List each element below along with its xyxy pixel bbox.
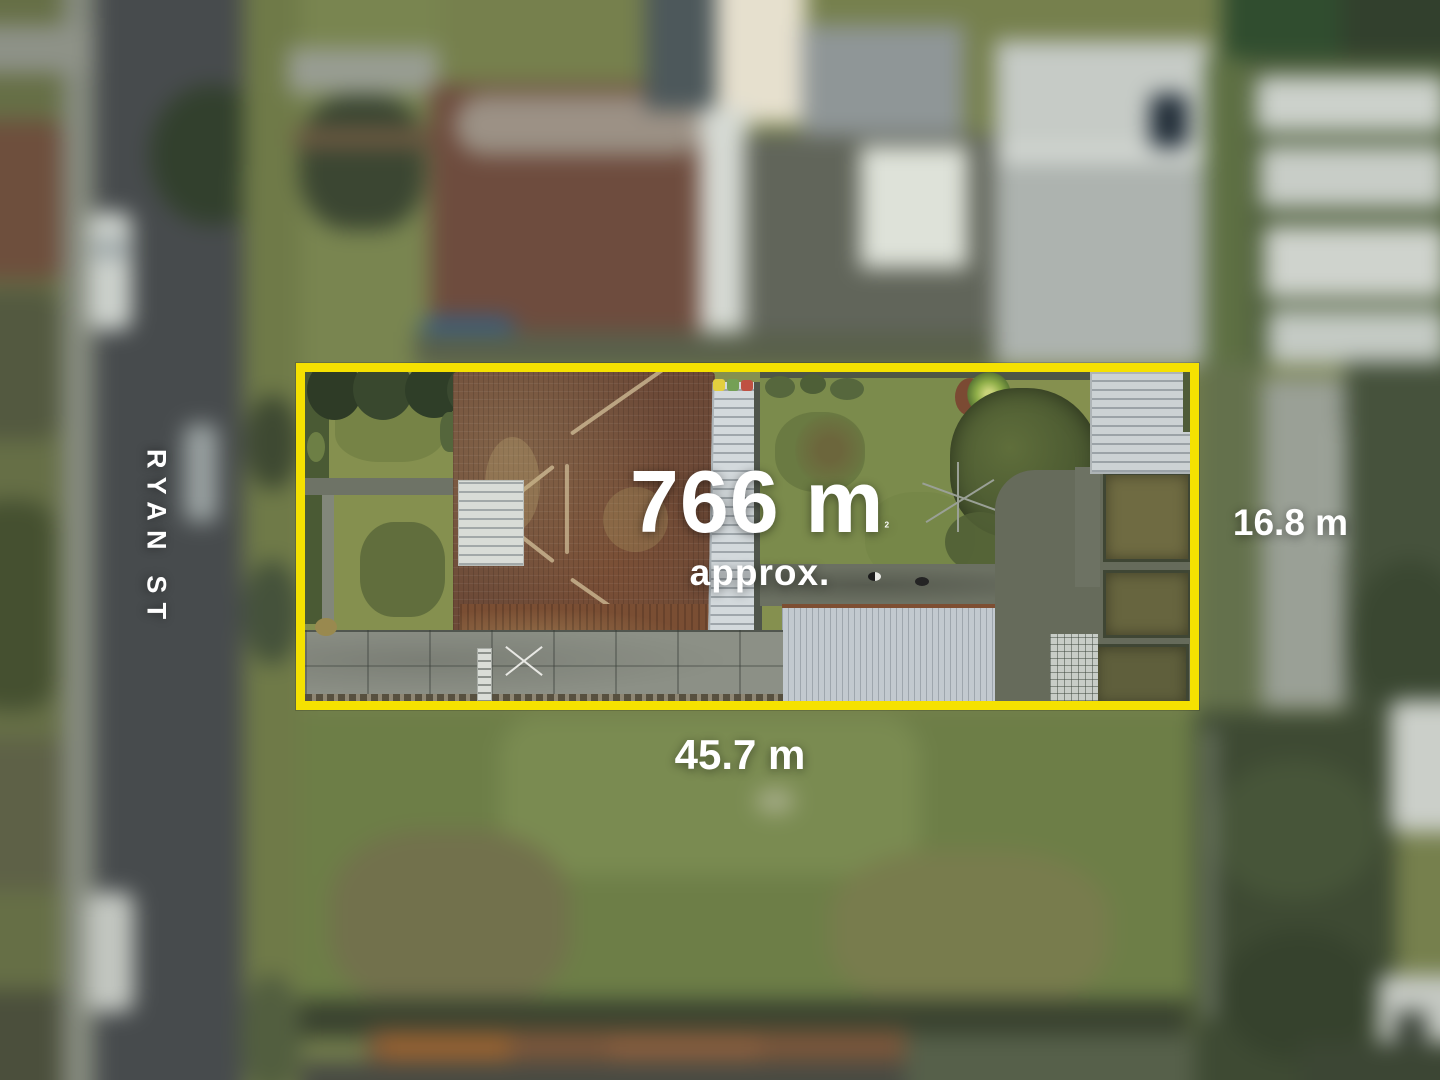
- trees-top: [300, 95, 425, 230]
- strip-tree: [243, 560, 301, 665]
- rear-lawn-brown: [330, 830, 570, 1010]
- wheelie-bin-green: [727, 379, 739, 391]
- white-gate: [477, 648, 492, 701]
- shrub: [800, 374, 826, 394]
- caravan: [1264, 226, 1440, 298]
- green-roof: [1222, 0, 1347, 65]
- side-dimension-label: 16.8 m: [1208, 502, 1373, 544]
- parked-car: [86, 892, 134, 1012]
- car-windshield: [92, 240, 128, 258]
- street-name-label: RYAN ST: [126, 436, 186, 641]
- frontage-dimension-label: 45.7 m: [640, 731, 840, 779]
- aerial-property-photo: RYAN ST 766 m2 approx. 45.7 m 16.8 m: [0, 0, 1440, 1080]
- caravan: [1260, 146, 1440, 208]
- dark-curved-roof: [645, 0, 720, 110]
- garden-bed: [1103, 570, 1190, 638]
- warehouse-seam: [998, 148, 1208, 162]
- parked-car: [88, 212, 132, 330]
- caravan: [1268, 310, 1440, 364]
- brick-edge: [305, 694, 783, 701]
- gray-roof: [802, 25, 964, 137]
- strip-tree: [245, 395, 300, 490]
- wheelie-bin-yellow: [713, 379, 725, 391]
- bush-highlight: [307, 432, 325, 462]
- dark-car: [1150, 94, 1188, 148]
- cross-path: [0, 25, 95, 73]
- caravan: [1256, 76, 1440, 132]
- fence-line: [295, 128, 445, 148]
- yard-blob: [0, 290, 60, 440]
- rear-garage-roof: [1090, 372, 1190, 474]
- driveway-pavers: [305, 630, 783, 701]
- roof-ridge: [570, 372, 671, 436]
- hedge-blob: [1210, 760, 1380, 900]
- garden-path-vertical: [1075, 467, 1100, 587]
- flat-roof-section: [458, 480, 524, 566]
- rear-lawn-brown: [830, 850, 1110, 1010]
- grass-strip: [1205, 58, 1250, 364]
- caravan: [1390, 700, 1440, 832]
- white-walkway: [700, 108, 748, 340]
- area-value: 766 m: [630, 452, 885, 551]
- white-building: [860, 146, 968, 268]
- nature-strip: [243, 0, 303, 1080]
- lawn-speck: [755, 788, 795, 814]
- area-qualifier-label: approx.: [560, 552, 960, 594]
- shrub: [830, 378, 864, 400]
- garden-bed: [1093, 644, 1189, 701]
- front-path: [305, 478, 457, 495]
- lawn-patch-dark: [360, 522, 445, 617]
- shrub: [315, 618, 337, 636]
- garden-bed: [1103, 472, 1190, 562]
- warehouse-panel: [1000, 160, 1205, 360]
- hedge-blob: [0, 500, 55, 710]
- trellis-frame: [1050, 634, 1098, 701]
- fence-post-line: [1206, 728, 1214, 1018]
- bottom-right-trees: [1300, 1042, 1440, 1080]
- roof-blob: [0, 120, 65, 280]
- bottom-right-green: [905, 1035, 1200, 1080]
- hedge-corner: [1183, 372, 1190, 432]
- bottom-dark-roof: [300, 1062, 920, 1080]
- cream-building: [716, 0, 806, 123]
- area-label: 766 m2: [560, 458, 960, 546]
- wheelie-bin-red: [741, 380, 753, 391]
- shrub: [765, 376, 795, 398]
- hedge-blob: [1220, 930, 1380, 1060]
- driving-car: [184, 424, 218, 522]
- path-top: [288, 48, 438, 93]
- rusty-roof-seg: [380, 1034, 510, 1064]
- area-superscript: 2: [884, 520, 890, 530]
